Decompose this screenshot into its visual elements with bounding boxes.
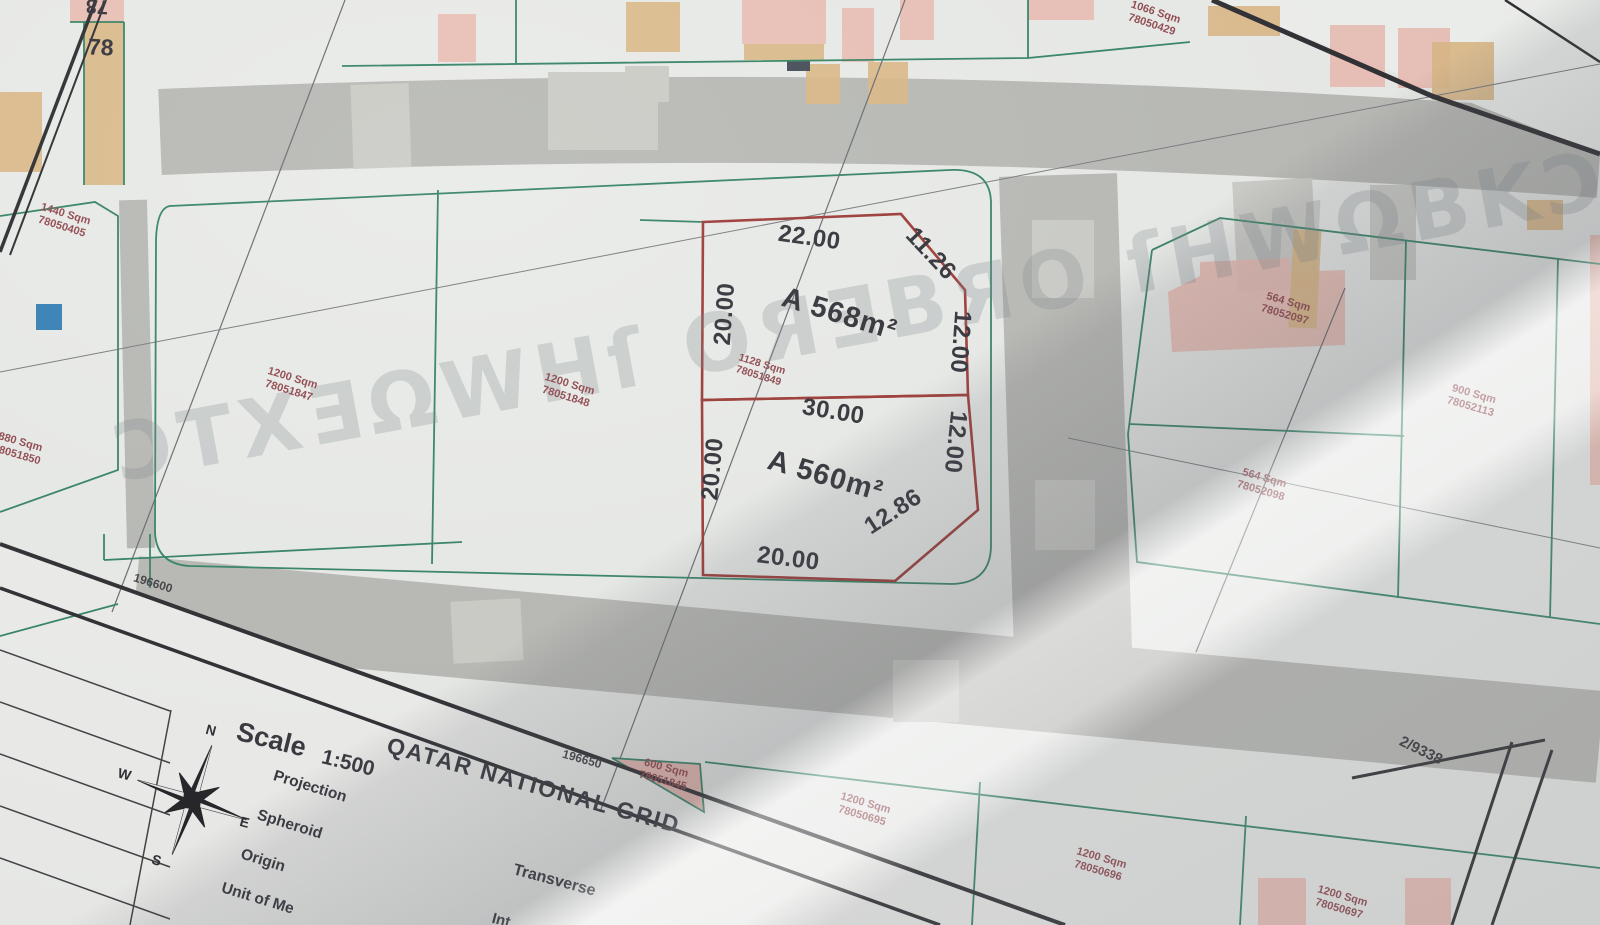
origin-label: Origin <box>238 846 287 877</box>
area-label-560: A 560m² <box>764 444 887 508</box>
dim-left-560: 20.00 <box>695 423 731 515</box>
grid-coord-196650: 196650 <box>561 747 603 771</box>
highlight-parcel-number: 1128 Sqm 78051849 <box>734 351 787 388</box>
plot-parcel-label: 880 Sqm 78051850 <box>0 430 45 468</box>
plot-parcel-label: 1200 Sqm 78050696 <box>1072 845 1128 883</box>
compass-north-label: N <box>204 721 218 739</box>
unit-label: Unit of Me <box>219 879 296 918</box>
transverse-label: Transverse <box>511 861 597 900</box>
block-number-mirrored: 78 <box>85 0 108 18</box>
grid-name: QATAR NATIONAL GRID <box>384 732 684 839</box>
plot-parcel-label: 900 Sqm 78052113 <box>1445 382 1498 420</box>
grid-coord-196600: 196600 <box>132 570 174 595</box>
compass-west-label: W <box>116 765 133 784</box>
compass-south-label: S <box>150 851 163 869</box>
plot-parcel-label: 1200 Sqm 78050695 <box>836 790 892 828</box>
dim-right-568: 12.00 <box>943 296 977 388</box>
sheet-ref: 2/9338 <box>1397 733 1446 768</box>
plot-parcel-label: 564 Sqm 78052097 <box>1259 290 1313 328</box>
dim-right-560: 12.00 <box>936 396 973 488</box>
plot-parcel-label: 564 Sqm 78052098 <box>1235 466 1289 504</box>
plot-parcel-label: 1066 Sqm 78050429 <box>1125 0 1182 39</box>
block-number: 78 <box>87 33 114 61</box>
plot-parcel-label: 1200 Sqm 78051848 <box>539 371 596 410</box>
spheroid-label: Spheroid <box>255 807 324 844</box>
survey-map-photo: ƆTXƎΩWHſ OЯƎВЯO ſHWΩBKƆ 78 78 22.00 11.2… <box>0 0 1600 925</box>
plot-parcel-label: 1200 Sqm 78050697 <box>1313 883 1369 921</box>
scale-label: Scale1:500 <box>233 716 379 781</box>
area-label-568: A 568m² <box>778 281 901 347</box>
intersection-label: Int <box>490 910 512 925</box>
plot-parcel-label: 1440 Sqm 78050405 <box>35 201 92 240</box>
dim-top-568: 22.00 <box>776 220 842 256</box>
dim-left-568: 20.00 <box>708 268 742 360</box>
dim-chamfer-568: 11.26 <box>899 222 961 286</box>
plot-parcel-label: 600 Sqm 78051845 <box>638 756 692 793</box>
plot-parcel-label: 1200 Sqm 78051847 <box>262 365 319 404</box>
projection-label: Projection <box>271 767 349 806</box>
compass-east-label: E <box>238 813 251 831</box>
dim-top-560: 30.00 <box>800 393 866 430</box>
dim-bottom-560: 20.00 <box>756 541 822 576</box>
